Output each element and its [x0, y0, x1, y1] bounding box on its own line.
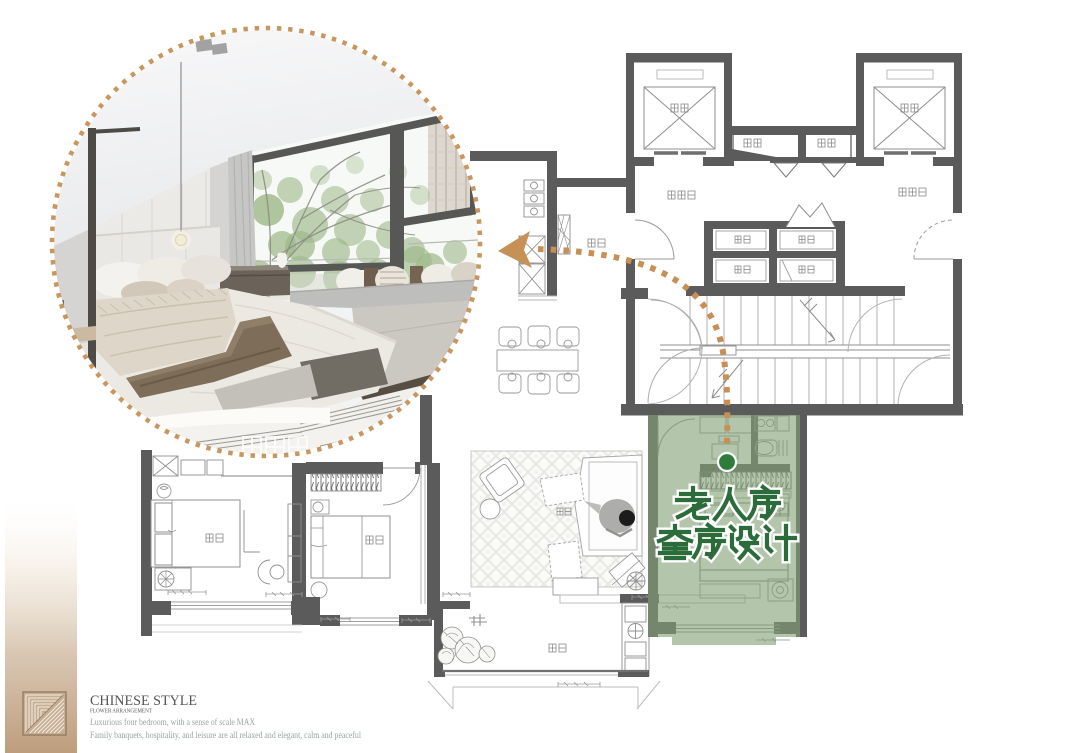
svg-text:Family banquets, hospitality,: Family banquets, hospitality, and leisur…: [90, 730, 361, 740]
svg-text:Luxurious four bedroom, with a: Luxurious four bedroom, with a sense of …: [90, 717, 255, 727]
svg-text:FLOWER ARRANGEMENT: FLOWER ARRANGEMENT: [90, 709, 152, 715]
svg-text:CHINESE STYLE: CHINESE STYLE: [90, 693, 197, 709]
